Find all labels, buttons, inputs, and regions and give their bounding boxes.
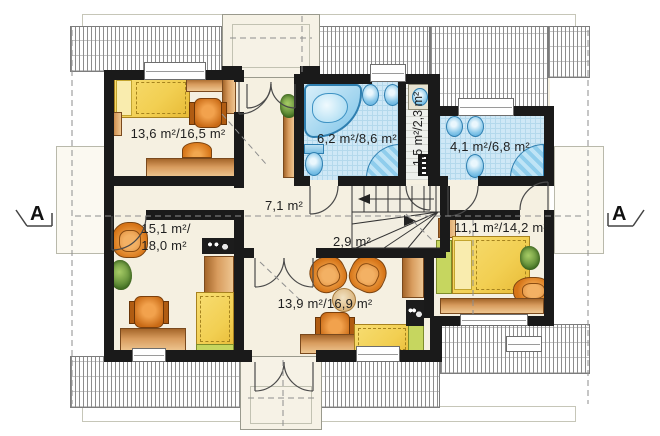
room-label-closet: 1,5 m²/2,3 m² bbox=[411, 83, 425, 175]
room-label-bedroom-bottom-right: 11,1 m²/14,2 m² bbox=[454, 220, 548, 235]
room-label-bathroom-small: 4,1 m²/6,8 m² bbox=[450, 139, 530, 154]
room-label-room-bottom-middle: 13,9 m²/16,9 m² bbox=[278, 296, 373, 311]
room-label-bathroom-main: 6,2 m²/8,6 m² bbox=[317, 131, 397, 146]
room-label-bedroom-bottom-left-line2: 18,0 m² bbox=[141, 238, 186, 253]
room-label-hall: 7,1 m² bbox=[265, 198, 303, 213]
section-marker-right: A bbox=[612, 203, 626, 226]
room-label-staircase: 2,9 m² bbox=[333, 234, 371, 249]
room-label-bedroom-top-left: 13,6 m²/16,5 m² bbox=[131, 126, 226, 141]
room-label-bedroom-bottom-left-line1: 15,1 m²/ bbox=[141, 221, 190, 236]
section-marker-left: A bbox=[30, 203, 44, 226]
floor-plan: 13,6 m²/16,5 m² 6,2 m²/8,6 m² 1,5 m²/2,3… bbox=[0, 0, 660, 436]
plan-linework bbox=[0, 0, 660, 436]
